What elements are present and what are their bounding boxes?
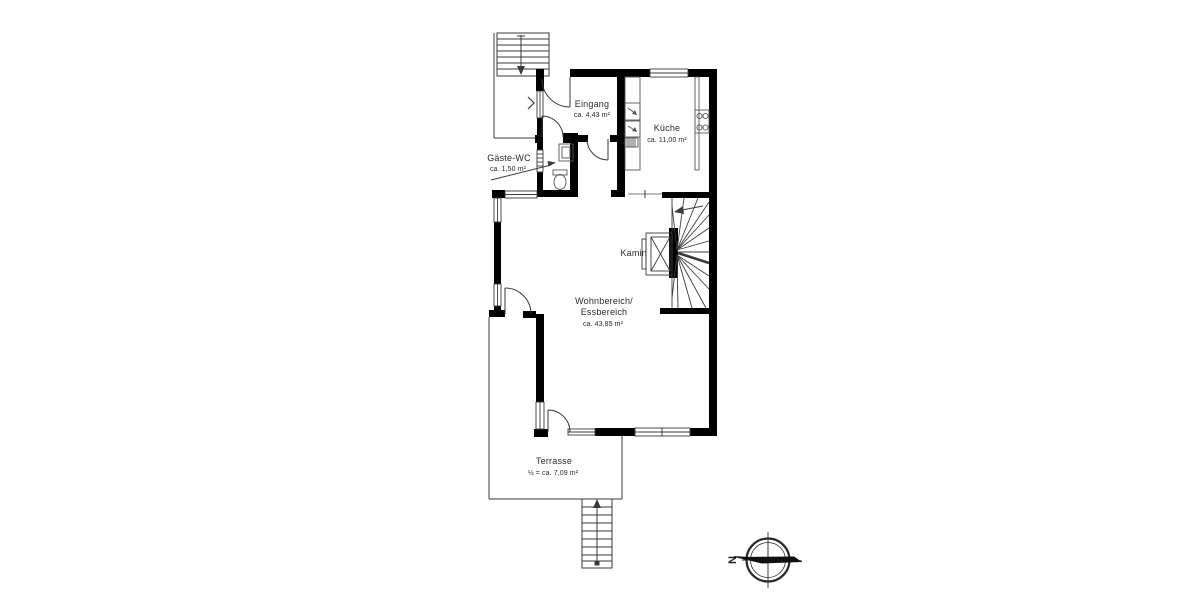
- living-bottom-window-2: [662, 428, 690, 436]
- stair-direction-arrow-icon: [517, 66, 525, 75]
- doors: [505, 77, 608, 432]
- label-gaeste-wc-area: ca. 1,50 m²: [490, 166, 527, 173]
- floor-plan-canvas: N Eingang ca. 4,43 m² Küche ca. 11,00 m²…: [0, 0, 1200, 600]
- label-kamin: Kamin: [620, 248, 647, 258]
- terrace-exterior-stairs: [582, 499, 612, 568]
- compass-north-label: N: [727, 556, 739, 564]
- eingang-side-window: [537, 91, 543, 118]
- label-kueche-area: ca. 11,00 m²: [647, 137, 687, 144]
- stair-up-arrow-icon: [674, 206, 684, 214]
- kitchen-counter-right: [695, 77, 699, 170]
- stair-direction-arrow-icon: [593, 499, 601, 508]
- label-wohnbereich-1: Wohnbereich/: [575, 296, 633, 306]
- kitchen-counter-left: [625, 77, 640, 170]
- kitchen-hob: [695, 110, 709, 133]
- entrance-door: [542, 77, 570, 107]
- living-bottom-window-1: [635, 428, 662, 436]
- terrace-door-lower: [548, 410, 570, 432]
- terrace-door-upper: [505, 288, 531, 314]
- arrow-head-icon: [548, 161, 557, 167]
- eingang-living-door: [587, 139, 608, 160]
- floor-plan: N Eingang ca. 4,43 m² Küche ca. 11,00 m²…: [0, 0, 1200, 600]
- label-gaeste-wc: Gäste-WC: [487, 153, 531, 163]
- living-top-window: [505, 191, 537, 198]
- label-terrasse-area: ½ = ca. 7,09 m²: [528, 469, 579, 477]
- kitchen-window: [650, 69, 688, 77]
- label-eingang-area: ca. 4,43 m²: [574, 112, 611, 119]
- label-kueche: Küche: [654, 123, 681, 133]
- label-wohnbereich-area: ca. 43,85 m²: [583, 321, 624, 328]
- wc-door: [542, 116, 563, 137]
- terrace-glazed-panel: [568, 429, 595, 435]
- living-left-window-3: [536, 402, 544, 429]
- room-labels: Eingang ca. 4,43 m² Küche ca. 11,00 m² G…: [487, 99, 687, 477]
- walls: [489, 69, 717, 437]
- wc-toilet: [553, 170, 567, 190]
- label-wohnbereich-2: Essbereich: [581, 307, 628, 317]
- living-left-window-1: [494, 198, 501, 222]
- label-terrasse: Terrasse: [536, 456, 572, 466]
- kitchen-passage-opening: [628, 190, 662, 198]
- kitchen-sink: [625, 138, 638, 147]
- compass-rose: N: [727, 532, 802, 588]
- entrance-chevron-icon: [528, 97, 534, 109]
- living-left-window-2: [494, 284, 501, 306]
- label-eingang: Eingang: [575, 99, 609, 109]
